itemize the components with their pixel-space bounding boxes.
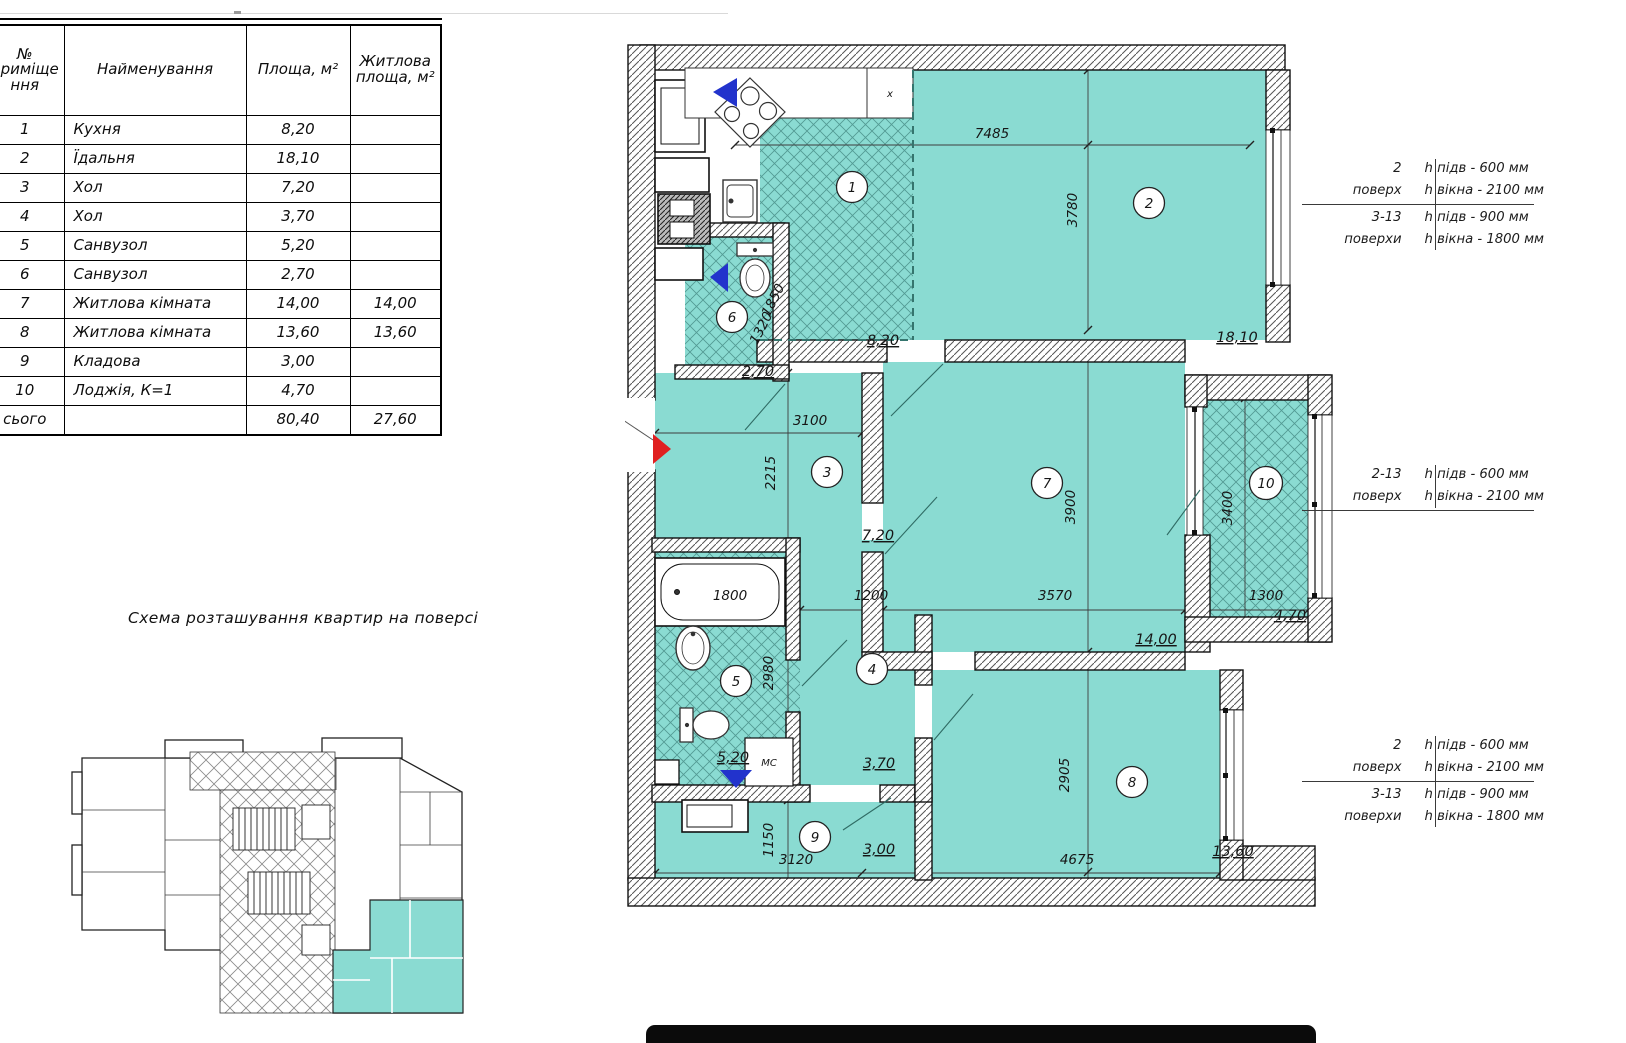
cell-name: Хол (64, 202, 246, 231)
table-row: 3Хол7,20 (0, 173, 441, 202)
floor-number: 3-13 (1302, 787, 1402, 802)
window-spec-block-top: 2 поверх h підв - 600 мм h вікна - 2100 … (1302, 156, 1544, 253)
total-label: сього (0, 405, 64, 435)
col-header-name: Найменування (64, 25, 246, 116)
table-double-topline (0, 18, 442, 20)
room-number: 7 (1043, 476, 1052, 492)
rooms-table: № приміщення Найменування Площа, м² Житл… (0, 24, 442, 436)
washer-label: МС (761, 758, 777, 769)
spec-divider (1435, 465, 1436, 508)
col-header-area: Площа, м² (246, 25, 350, 116)
cell-living (350, 347, 441, 376)
wall-storage-top-stub (880, 785, 915, 802)
floor-number: 3-13 (1302, 210, 1402, 225)
area-label: 4,70 (1274, 608, 1306, 624)
room-number: 5 (732, 674, 741, 690)
cell-living (350, 260, 441, 289)
window-loggia-door (1187, 407, 1203, 535)
spec-window: h вікна - 1800 мм (1425, 232, 1544, 247)
vent-label: x (886, 89, 893, 100)
total-living: 27,60 (350, 405, 441, 435)
cell-num: 5 (0, 231, 64, 260)
table-row: 8Житлова кімната13,6013,60 (0, 318, 441, 347)
spec-window: h вікна - 1800 мм (1425, 809, 1544, 824)
area-label: 3,00 (863, 842, 895, 858)
apartment-plan: x 1800 (625, 40, 1335, 910)
cell-name: Житлова кімната (64, 289, 246, 318)
wall-r2-stub-bottom (1266, 285, 1290, 342)
cell-area: 13,60 (246, 318, 350, 347)
dim-label: 3780 (1065, 193, 1081, 227)
wall-hall4-right-b (915, 738, 932, 802)
wall-r2-stub-top (1266, 70, 1290, 130)
table-row: 4Хол3,70 (0, 202, 441, 231)
wall-top (640, 45, 1285, 70)
table-row: 6Санвузол2,70 (0, 260, 441, 289)
cell-num: 6 (0, 260, 64, 289)
bath-sink-icon (676, 626, 710, 670)
cell-num: 7 (0, 289, 64, 318)
cell-area: 3,70 (246, 202, 350, 231)
shaft-vent (670, 200, 694, 216)
spec-row: 3-13 поверхи h підв - 900 мм h вікна - 1… (1302, 782, 1544, 830)
table-row: 1Кухня8,20 (0, 115, 441, 144)
cell-area: 2,70 (246, 260, 350, 289)
wall-dining-bottom (945, 340, 1185, 362)
building-scheme (70, 640, 470, 1018)
area-label: 2,70 (742, 364, 774, 380)
table-header-row: № приміщення Найменування Площа, м² Житл… (0, 25, 441, 116)
wall-left-lower (628, 470, 655, 880)
shaft-box (655, 158, 709, 192)
cell-name: Хол (64, 173, 246, 202)
spec-row: 2 поверх h підв - 600 мм h вікна - 2100 … (1302, 156, 1544, 204)
wall-hall-living-a (862, 373, 883, 503)
window-spec-block-bottom: 2 поверх h підв - 600 мм h вікна - 2100 … (1302, 733, 1544, 830)
dim-label: 2215 (763, 456, 779, 490)
shaft-vent (670, 222, 694, 238)
room-number: 8 (1128, 775, 1137, 791)
spec-rule (1302, 510, 1534, 511)
floor-word: поверх (1302, 489, 1402, 504)
spec-window: h вікна - 2100 мм (1425, 183, 1544, 198)
room-number: 9 (811, 830, 820, 846)
tub-dim: 1800 (713, 588, 747, 604)
wall-bath-top (652, 538, 800, 552)
dim-label: 4675 (1060, 852, 1094, 868)
dim-label: 7485 (975, 126, 1009, 142)
cell-living: 14,00 (350, 289, 441, 318)
cell-name: Лоджія, К=1 (64, 376, 246, 405)
bottom-bar (646, 1025, 1316, 1043)
wall-loggia-right-stub-bottom (1308, 598, 1332, 642)
area-label: 7,20 (862, 528, 894, 544)
floor-number: 2 (1302, 738, 1402, 753)
table-row: 5Санвузол5,20 (0, 231, 441, 260)
spec-sill: h підв - 900 мм (1425, 787, 1544, 802)
room-dining-floor (913, 68, 1268, 340)
dim-label: 3400 (1220, 491, 1236, 525)
wc-fixtures (737, 243, 773, 297)
cell-living: 13,60 (350, 318, 441, 347)
entry-opening (626, 398, 655, 472)
washer-box: МС (745, 738, 793, 786)
dim-label: 1200 (854, 588, 888, 604)
dim-label: 3100 (793, 413, 827, 429)
wall-hall4-right-a (915, 615, 932, 685)
spec-row: 2-13 поверх h підв - 600 мм h вікна - 21… (1302, 462, 1544, 510)
spec-window: h вікна - 2100 мм (1425, 489, 1544, 504)
wall-loggia-right-stub-top (1308, 375, 1332, 415)
dim-label: 1300 (1249, 588, 1283, 604)
area-label: 18,10 (1216, 330, 1258, 346)
spec-sill: h підв - 900 мм (1425, 210, 1544, 225)
floor-word: поверхи (1302, 809, 1402, 824)
dim-label: 3120 (779, 852, 813, 868)
cell-area: 4,70 (246, 376, 350, 405)
dim-label: 2905 (1057, 758, 1073, 792)
window-spec-block-middle: 2-13 поверх h підв - 600 мм h вікна - 21… (1302, 462, 1544, 511)
wall-bottom (628, 878, 1315, 906)
cell-name: Їдальня (64, 144, 246, 173)
table-row: 9Кладова3,00 (0, 347, 441, 376)
wall-loggia-left-stub (1185, 375, 1207, 407)
dim-label: 3570 (1038, 588, 1072, 604)
cell-area: 3,00 (246, 347, 350, 376)
cell-name: Кладова (64, 347, 246, 376)
cell-area: 5,20 (246, 231, 350, 260)
spec-row: 2 поверх h підв - 600 мм h вікна - 2100 … (1302, 733, 1544, 781)
cell-living (350, 202, 441, 231)
spec-sill: h підв - 600 мм (1425, 161, 1544, 176)
room-number: 10 (1257, 476, 1274, 492)
total-empty (64, 405, 246, 435)
dim-label: 1150 (761, 823, 777, 857)
area-label: 3,70 (863, 756, 895, 772)
rooms-table-wrap: № приміщення Найменування Площа, м² Житл… (0, 18, 442, 436)
table-row: 2Їдальня18,10 (0, 144, 441, 173)
cell-num: 2 (0, 144, 64, 173)
dim-label: 3900 (1063, 490, 1079, 524)
table-row: 10Лоджія, К=14,70 (0, 376, 441, 405)
spec-divider (1435, 159, 1436, 250)
table-total-row: сього80,4027,60 (0, 405, 441, 435)
cell-area: 7,20 (246, 173, 350, 202)
spec-sill: h підв - 600 мм (1425, 467, 1544, 482)
floor-word: поверхи (1302, 232, 1402, 247)
cell-name: Житлова кімната (64, 318, 246, 347)
bath-box (655, 760, 679, 784)
window-dining (1266, 128, 1290, 287)
area-label: 13,60 (1212, 844, 1254, 860)
cell-area: 18,10 (246, 144, 350, 173)
room-number: 3 (823, 465, 832, 481)
floorplan-page: { "table": { "col_headers": ["№ приміщен… (0, 0, 1626, 1035)
cell-num: 4 (0, 202, 64, 231)
wall-left-upper (628, 45, 655, 400)
bath-toilet-icon (680, 708, 729, 742)
floor-word: поверх (1302, 760, 1402, 775)
cell-num: 1 (0, 115, 64, 144)
total-area: 80,40 (246, 405, 350, 435)
table-row: 7Житлова кімната14,0014,00 (0, 289, 441, 318)
cell-area: 14,00 (246, 289, 350, 318)
cell-num: 10 (0, 376, 64, 405)
cell-living (350, 376, 441, 405)
spec-sill: h підв - 600 мм (1425, 738, 1544, 753)
spec-divider (1435, 736, 1436, 827)
room-number: 1 (848, 180, 857, 196)
cell-name: Санвузол (64, 260, 246, 289)
kitchen-sink-icon (723, 180, 757, 222)
wall-r8-stub-top (1220, 670, 1243, 710)
col-header-number: № приміщення (0, 25, 64, 116)
cell-num: 9 (0, 347, 64, 376)
col-header-living: Житлова площа, м² (350, 25, 441, 116)
room-number: 4 (868, 662, 877, 678)
area-label: 5,20 (717, 750, 749, 766)
shaft-box (655, 248, 703, 280)
top-hairline (0, 13, 728, 14)
window-room8 (1220, 708, 1243, 841)
cell-area: 8,20 (246, 115, 350, 144)
floor-number: 2 (1302, 161, 1402, 176)
floor-number: 2-13 (1302, 467, 1402, 482)
room-number: 2 (1145, 196, 1154, 212)
room-number: 6 (728, 310, 737, 326)
cell-living (350, 231, 441, 260)
cell-living (350, 173, 441, 202)
cell-living (350, 144, 441, 173)
cell-num: 8 (0, 318, 64, 347)
wall-room7-8-b (975, 652, 1185, 670)
cell-name: Санвузол (64, 231, 246, 260)
room-loggia-floor (1203, 398, 1308, 620)
storage-cabinet (682, 800, 748, 832)
wall-bath-right-a (786, 538, 800, 660)
floor-word: поверх (1302, 183, 1402, 198)
top-hairline-dash (234, 11, 241, 14)
spec-window: h вікна - 2100 мм (1425, 760, 1544, 775)
area-label: 14,00 (1135, 632, 1177, 648)
spec-row: 3-13 поверхи h підв - 900 мм h вікна - 1… (1302, 205, 1544, 253)
scheme-title: Схема розташування квартир на поверсі (128, 609, 468, 627)
dim-label: 2980 (761, 656, 777, 690)
cell-living (350, 115, 441, 144)
room-living8-floor (932, 670, 1220, 880)
area-label: 8,20 (867, 333, 899, 349)
cell-num: 3 (0, 173, 64, 202)
cell-name: Кухня (64, 115, 246, 144)
